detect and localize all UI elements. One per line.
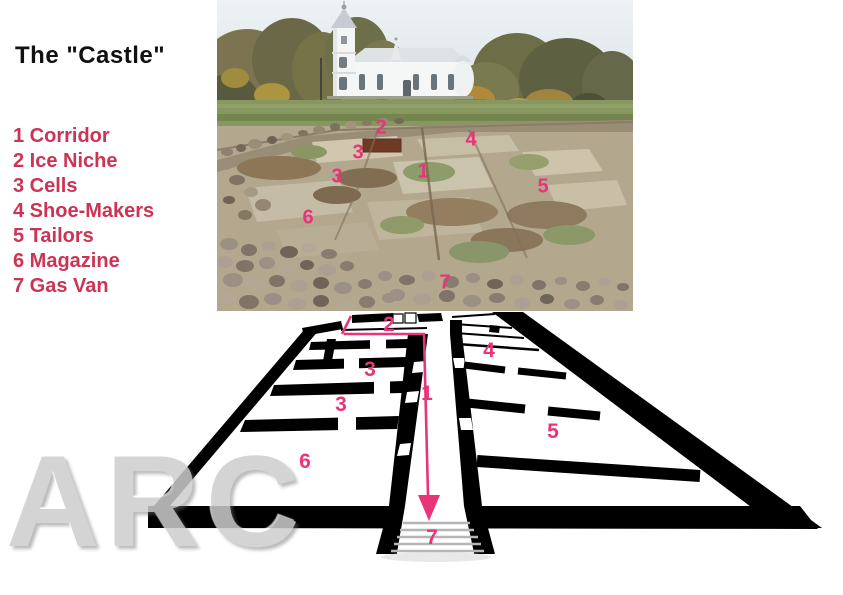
plan-label-3b: 3 [335, 393, 347, 417]
photo-label-1: 1 [417, 161, 428, 184]
watermark: ARC [6, 436, 306, 566]
plan-label-6: 6 [299, 450, 311, 474]
plan-label-4: 4 [483, 339, 495, 363]
plan-label-7: 7 [426, 526, 438, 550]
slide: The "Castle" 1 Corridor 2 Ice Niche 3 Ce… [0, 0, 843, 595]
photo-label-6: 6 [302, 207, 313, 230]
photo-label-5: 5 [537, 176, 548, 199]
plan-label-5: 5 [547, 420, 559, 444]
photo-label-3b: 3 [331, 166, 342, 189]
photo-label-2: 2 [375, 117, 386, 140]
plan-label-2: 2 [383, 313, 395, 337]
photo-label-3a: 3 [352, 142, 363, 165]
plan-label-3a: 3 [364, 358, 376, 382]
photo-label-4: 4 [465, 129, 476, 152]
plan-label-1: 1 [421, 382, 433, 406]
photo-label-7: 7 [439, 272, 450, 295]
